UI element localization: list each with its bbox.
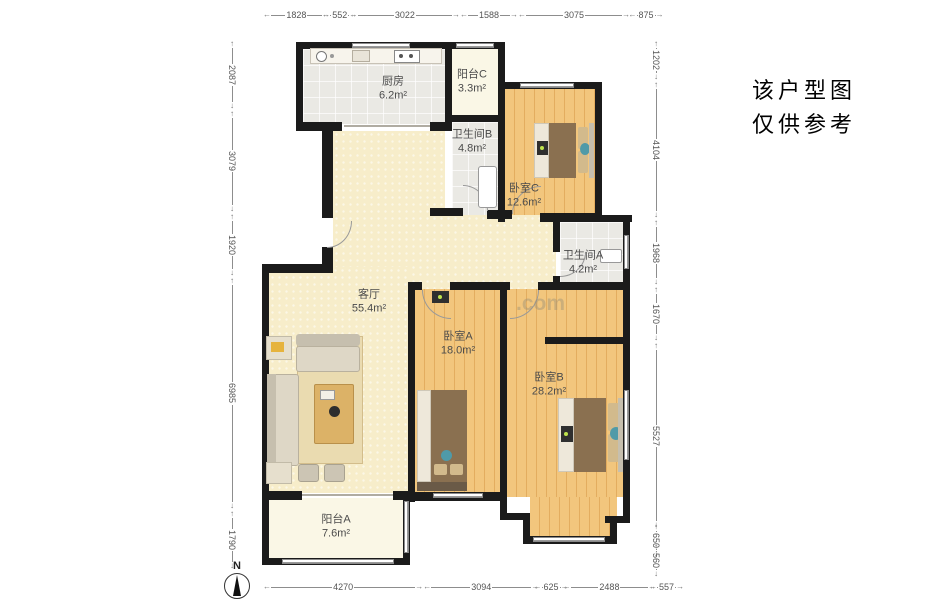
dimension-arrow: ← [563,583,571,591]
coffee-table-kettle [329,406,340,417]
dimension-line [271,587,332,588]
dimension-value: 560 [651,552,661,569]
room-area: 18.0m² [441,344,475,358]
wall [445,42,452,122]
room-label-balcony-a: 阳台A 7.6m² [321,513,350,541]
room-name: 厨房 [379,75,407,89]
compass-needle-icon [224,573,250,599]
dimension-arrow: ↑ [654,523,658,531]
dimension-line [416,15,452,16]
dimension-segment: ←1588→ [460,8,518,22]
dimension-segment: ←2488→ [563,580,656,594]
room-area: 55.4m² [352,302,386,316]
watermark: .com [516,292,565,316]
room-name: 卧室A [441,330,475,344]
bedroom-b-floor-bay [530,497,617,537]
dimension-line [358,15,394,16]
room-label-bedroom-b: 卧室B 28.2m² [532,371,566,399]
dimension-arrow: ← [263,583,271,591]
dimension-segment: ←4270→ [263,580,423,594]
bed-blanket [574,398,606,472]
dimension-arrow: → [676,583,684,591]
bed-headboard [417,482,467,491]
dimension-segment: ←875→ [630,8,662,22]
dimension-arrow: ← [423,583,431,591]
room-area: 7.6m² [321,527,350,541]
wall [262,264,333,273]
notice-line-2: 仅供参考 [752,108,856,142]
dimension-value: 625 [543,582,560,592]
kitchen-sink-tap [330,54,334,58]
dimension-line [656,350,657,424]
wall [500,282,507,520]
dimension-value: 2087 [227,64,237,86]
dimension-line [232,256,233,269]
coffee-table-tray [320,390,335,400]
notice-line-1: 该户型图 [752,74,856,108]
dimension-line-left: ↑2087↓↑3079↓↑1920↓↑6985↓↑1790↓ [225,40,239,570]
dimension-value: 557 [658,582,675,592]
dimension-arrow: ↓ [654,570,658,578]
dimension-segment: ↑5527↓ [649,342,663,529]
stove-burner [409,54,413,58]
dimension-line [431,587,470,588]
bed-sheet [417,390,431,482]
dimension-value: 875 [638,10,655,20]
dimension-line [656,227,657,241]
dimension-line [232,86,233,102]
dimension-value: 1790 [227,529,237,551]
dimension-line [232,118,233,150]
dimension-value: 3079 [227,150,237,172]
stool [298,464,319,482]
dimension-line [232,172,233,204]
kitchen-appliance [352,50,370,62]
dimension-segment: ←625→ [539,580,562,594]
wall [408,282,415,502]
room-area: 4.2m² [563,263,603,277]
dimension-value: 1920 [227,234,237,256]
dimension-segment: ←3022→ [350,8,460,22]
dimension-arrow: ← [350,11,358,19]
bathroom-sink [600,249,622,263]
wall [498,42,505,222]
pillow [434,464,447,475]
balcony-c-window [456,43,494,48]
dimension-arrow: ↑ [230,110,234,118]
dimension-segment: ←3094→ [423,580,539,594]
dimension-arrow: → [415,583,423,591]
room-area: 28.2m² [532,385,566,399]
wall [296,122,342,131]
room-area: 4.8m² [452,142,492,156]
dimension-segment: ←1828→ [263,8,330,22]
dimension-arrow: ← [460,11,468,19]
dimension-segment: ↑1670↓ [649,286,663,342]
wall [545,337,623,344]
room-label-kitchen: 厨房 6.2m² [379,75,407,103]
tv-indicator [438,295,442,299]
wall [553,222,560,252]
room-area: 6.2m² [379,89,407,103]
dimension-value: 1968 [651,242,661,264]
room-label-bath-a: 卫生间A 4.2m² [563,249,603,277]
dimension-arrow: → [510,11,518,19]
dimension-segment: ↑560↓ [649,551,663,570]
wall [540,213,602,222]
dimension-arrow: ↑ [230,213,234,221]
wall [322,122,333,218]
dimension-arrow: ← [534,583,542,591]
dimension-line-right: ↑1202↓↑4104↓↑1968↓↑1670↓↑5527↓↑650↓↑560↓ [649,40,663,570]
stove-burner [399,54,403,58]
room-area: 3.3m² [457,82,487,96]
bed-headboard [589,123,594,178]
dimension-value: 1828 [285,10,307,20]
dimension-line [656,89,657,139]
dimension-value: 6985 [227,382,237,404]
sofa-back [296,334,360,346]
dimension-line [571,587,599,588]
dimension-arrow: ↑ [654,543,658,551]
dimension-segment: ←3075→ [518,8,630,22]
tv-indicator [564,432,568,436]
kitchen-sliding-door [344,125,430,127]
bedroom-c-window [520,83,574,88]
room-name: 阳台C [457,68,487,82]
dimension-line [656,447,657,521]
dimension-arrow: → [656,11,664,19]
dimension-line [232,285,233,383]
side-table [266,462,292,484]
room-name: 卫生间B [452,128,492,142]
dimension-value: 1670 [651,303,661,325]
wall [445,115,505,122]
dimension-segment: ←552→ [330,8,350,22]
dimension-segment: ↑4104↓ [649,81,663,220]
dimension-line [585,15,622,16]
room-label-bath-b: 卫生间B 4.8m² [452,128,492,156]
sofa-back [267,374,276,466]
dimension-segment: ↑1920↓ [225,213,239,277]
sofa [296,346,360,372]
room-name: 卫生间A [563,249,603,263]
dimension-arrow: ↑ [654,286,658,294]
dimension-arrow: → [452,11,460,19]
compass-north-label: N [218,560,256,572]
dimension-line [232,221,233,234]
room-name: 卧室C [507,182,541,196]
dimension-value: 4270 [332,582,354,592]
bed-headboard [618,398,623,472]
room-name: 卧室B [532,371,566,385]
dimension-value: 2488 [598,582,620,592]
dimension-arrow: ← [322,11,330,19]
bathtub [478,166,497,208]
wall [262,491,269,565]
dimension-line [468,15,478,16]
wall [487,210,512,219]
dimension-value: 1588 [478,10,500,20]
dimension-line [271,15,285,16]
dimension-line [656,264,657,278]
dimension-value: 3075 [563,10,585,20]
room-label-balcony-c: 阳台C 3.3m² [457,68,487,96]
compass: N [218,560,256,599]
dimension-line [526,15,563,16]
bed-cushion [441,450,452,461]
dimension-arrow: ← [649,583,657,591]
dimension-line [656,161,657,211]
room-name: 客厅 [352,288,386,302]
bath-a-window [624,235,629,269]
floor-plan-page: { "notice": { "line1": "该户型图", "line2": … [0,0,925,605]
dimension-arrow: ↑ [654,81,658,89]
compass-needle [233,575,241,596]
living-floor-upper [333,131,445,221]
dimension-arrow: ← [518,11,526,19]
dimension-value: 4104 [651,139,661,161]
room-area: 12.6m² [507,196,541,210]
balcony-a-sliding-door [302,494,393,496]
dimension-value: 1202 [651,49,661,71]
dimension-value: 5527 [651,425,661,447]
dimension-line [354,587,415,588]
bedroom-a-window [433,493,483,498]
dimension-arrow: ← [629,11,637,19]
dimension-line [656,294,657,303]
dimension-arrow: ↑ [654,219,658,227]
kitchen-sink [316,51,327,62]
dimension-arrow: ← [263,11,271,19]
dimension-value: 3022 [394,10,416,20]
dimension-arrow: ↑ [654,342,658,350]
dimension-arrow: ↑ [230,510,234,518]
dimension-segment: ←557→ [656,580,677,594]
bed-blanket [549,123,576,178]
dimension-line-top: ←1828→←552→←3022→←1588→←3075→←875→ [263,8,662,22]
dimension-line [620,587,648,588]
dimension-line [232,518,233,529]
wall [605,516,630,523]
dimension-line [492,587,531,588]
dimension-segment: ↑6985↓ [225,277,239,510]
dimension-line-bottom: ←4270→←3094→←625→←2488→←557→ [263,580,677,594]
dimension-line [500,15,510,16]
tv-indicator [540,146,544,150]
dimension-value: 552 [331,10,348,20]
balcony-a-window [282,559,394,564]
dimension-segment: ↑3079↓ [225,110,239,213]
dimension-line [307,15,321,16]
room-label-bedroom-c: 卧室C 12.6m² [507,182,541,210]
balcony-a-side-window [404,501,409,553]
dimension-segment: ↑2087↓ [225,40,239,110]
stool [324,464,345,482]
side-table-decor [271,342,284,352]
room-label-living: 客厅 55.4m² [352,288,386,316]
dimension-line [232,48,233,64]
bedroom-b-side-window [624,390,629,460]
wall [430,208,463,216]
room-name: 阳台A [321,513,350,527]
dimension-arrow: ↑ [230,277,234,285]
wall [430,122,452,131]
dimension-segment: ↑1968↓ [649,219,663,286]
room-label-bedroom-a: 卧室A 18.0m² [441,330,475,358]
wall [538,282,630,290]
bedroom-b-window [533,537,605,542]
wall [595,82,602,222]
dimension-line [232,405,233,503]
kitchen-stove [394,50,420,63]
notice-text: 该户型图 仅供参考 [752,74,856,142]
wall [296,42,303,131]
dimension-value: 3094 [470,582,492,592]
dimension-arrow: ↑ [230,40,234,48]
dimension-arrow: ↑ [654,40,658,48]
pillow [450,464,463,475]
dimension-segment: ↑1202↓ [649,40,663,81]
